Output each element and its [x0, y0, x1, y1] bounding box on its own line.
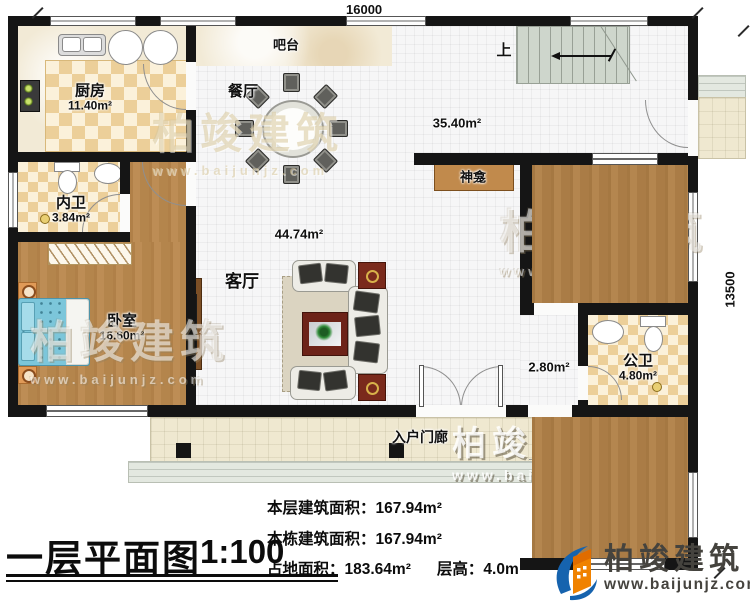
floor-plan-page: 厨房11.40m² 吧台 餐厅 35.40m² 上 神龛 内卫3.84m² 卧室…	[0, 0, 750, 614]
dining-chair	[283, 73, 300, 92]
porch-step	[128, 461, 582, 483]
wall	[578, 400, 588, 405]
bar-label: 吧台	[273, 35, 299, 54]
side-table-bottom	[358, 374, 386, 401]
wall	[520, 153, 532, 315]
dining-table	[262, 100, 324, 158]
wardrobe-left	[48, 243, 132, 265]
kitchen-stove	[20, 80, 40, 112]
sofa-cushion	[323, 369, 348, 391]
wall	[688, 16, 698, 100]
wall	[426, 16, 570, 26]
hallway-area-label: 2.80m²	[528, 360, 569, 375]
wall	[520, 303, 534, 315]
wall	[506, 405, 528, 417]
entry-porch-floor	[150, 417, 560, 463]
dining-label: 餐厅	[228, 84, 258, 100]
ensuite-toilet-bowl	[58, 170, 77, 194]
door-opening	[688, 100, 698, 156]
pillow	[21, 302, 35, 331]
sofa-cushion	[297, 370, 322, 391]
brand-logo: 柏竣建筑 www.baijunjz.com	[554, 544, 750, 594]
title-rule-thin	[6, 580, 338, 582]
brand-url: www.baijunjz.com	[604, 576, 750, 594]
shrine-label: 神龛	[460, 167, 486, 186]
kitchen-burner-right	[143, 30, 178, 65]
window	[346, 16, 426, 26]
porch-column	[389, 443, 404, 458]
public-bath-floor-drain	[652, 382, 662, 392]
wall	[8, 232, 130, 242]
bedroom-top-floor	[532, 165, 688, 303]
wall	[186, 26, 196, 62]
stat-building-area: 本栋建筑面积：167.94m²	[267, 527, 442, 549]
dining-chair	[329, 120, 348, 137]
door-opening	[186, 162, 196, 206]
stat-land-area: 占地面积：183.64m²层高：4.0m	[267, 557, 519, 579]
sofa-cushion	[324, 263, 349, 284]
door-opening	[186, 62, 196, 110]
coffee-table-plant	[315, 323, 333, 341]
wall	[578, 303, 698, 315]
height-dimension: 13500	[723, 271, 738, 307]
stair-arrow-icon	[551, 52, 560, 60]
window	[46, 405, 148, 417]
window	[688, 472, 698, 538]
door-opening	[534, 303, 578, 315]
wall	[148, 405, 416, 417]
window	[592, 153, 658, 165]
porch-label: 入户门廊	[392, 429, 448, 445]
side-porch-deck	[698, 75, 746, 99]
sofa-cushion	[353, 341, 380, 364]
living-label: 客厅	[225, 274, 259, 290]
wall	[136, 16, 160, 26]
wall	[8, 16, 18, 172]
stairs-up-label: 上	[496, 43, 511, 59]
bed-sheet	[66, 299, 89, 365]
bedroom-bottom-floor	[532, 417, 688, 558]
wall	[572, 405, 698, 417]
door-opening	[578, 366, 588, 400]
sofa-cushion	[298, 263, 323, 285]
wall	[8, 405, 46, 417]
side-table-top	[358, 262, 386, 289]
nightstand	[18, 366, 37, 384]
window	[160, 16, 236, 26]
kitchen-label: 厨房11.40m²	[68, 84, 112, 113]
dimension-tick	[738, 25, 750, 37]
sofa-cushion	[354, 315, 381, 338]
window	[8, 172, 18, 228]
public-bath-toilet-bowl	[644, 326, 663, 352]
entrance-door-opening	[416, 405, 506, 417]
hall-area-label: 35.40m²	[433, 116, 481, 131]
kitchen-sink-basin-left	[62, 37, 81, 52]
ensuite-floor-drain	[40, 214, 50, 224]
door-opening	[120, 194, 130, 232]
ensuite-label: 内卫3.84m²	[52, 196, 90, 225]
brand-logo-mark-icon	[554, 544, 600, 607]
entrance-door-leaf	[419, 365, 424, 407]
living-area-label: 44.74m²	[275, 227, 323, 242]
sofa-cushion	[353, 290, 381, 313]
public-bath-sink	[592, 320, 624, 344]
dining-chair	[283, 165, 300, 184]
stair-direction-line	[560, 55, 612, 57]
wall	[120, 162, 130, 194]
kitchen-burner-left	[108, 30, 143, 65]
entrance-door-leaf	[498, 365, 503, 407]
kitchen-sink-basin-right	[83, 37, 102, 52]
width-dimension: 16000	[346, 2, 382, 17]
wall	[8, 152, 196, 162]
wall	[186, 206, 196, 405]
pillow	[21, 332, 35, 361]
window	[688, 192, 698, 282]
brand-name: 柏竣建筑	[604, 544, 750, 576]
side-porch-floor	[698, 97, 746, 159]
public-bath-label: 公卫4.80m²	[619, 354, 657, 383]
ensuite-sink	[94, 163, 122, 184]
dining-chair	[235, 120, 254, 137]
bedroom-left-label: 卧室16.60m²	[100, 314, 145, 343]
wall	[236, 16, 346, 26]
window	[50, 16, 136, 26]
stat-floor-area: 本层建筑面积：167.94m²	[267, 496, 442, 518]
door-opening	[528, 405, 572, 417]
wall	[414, 153, 592, 165]
window	[570, 16, 648, 26]
wall	[8, 228, 18, 417]
wall	[578, 315, 588, 366]
porch-column	[176, 443, 191, 458]
